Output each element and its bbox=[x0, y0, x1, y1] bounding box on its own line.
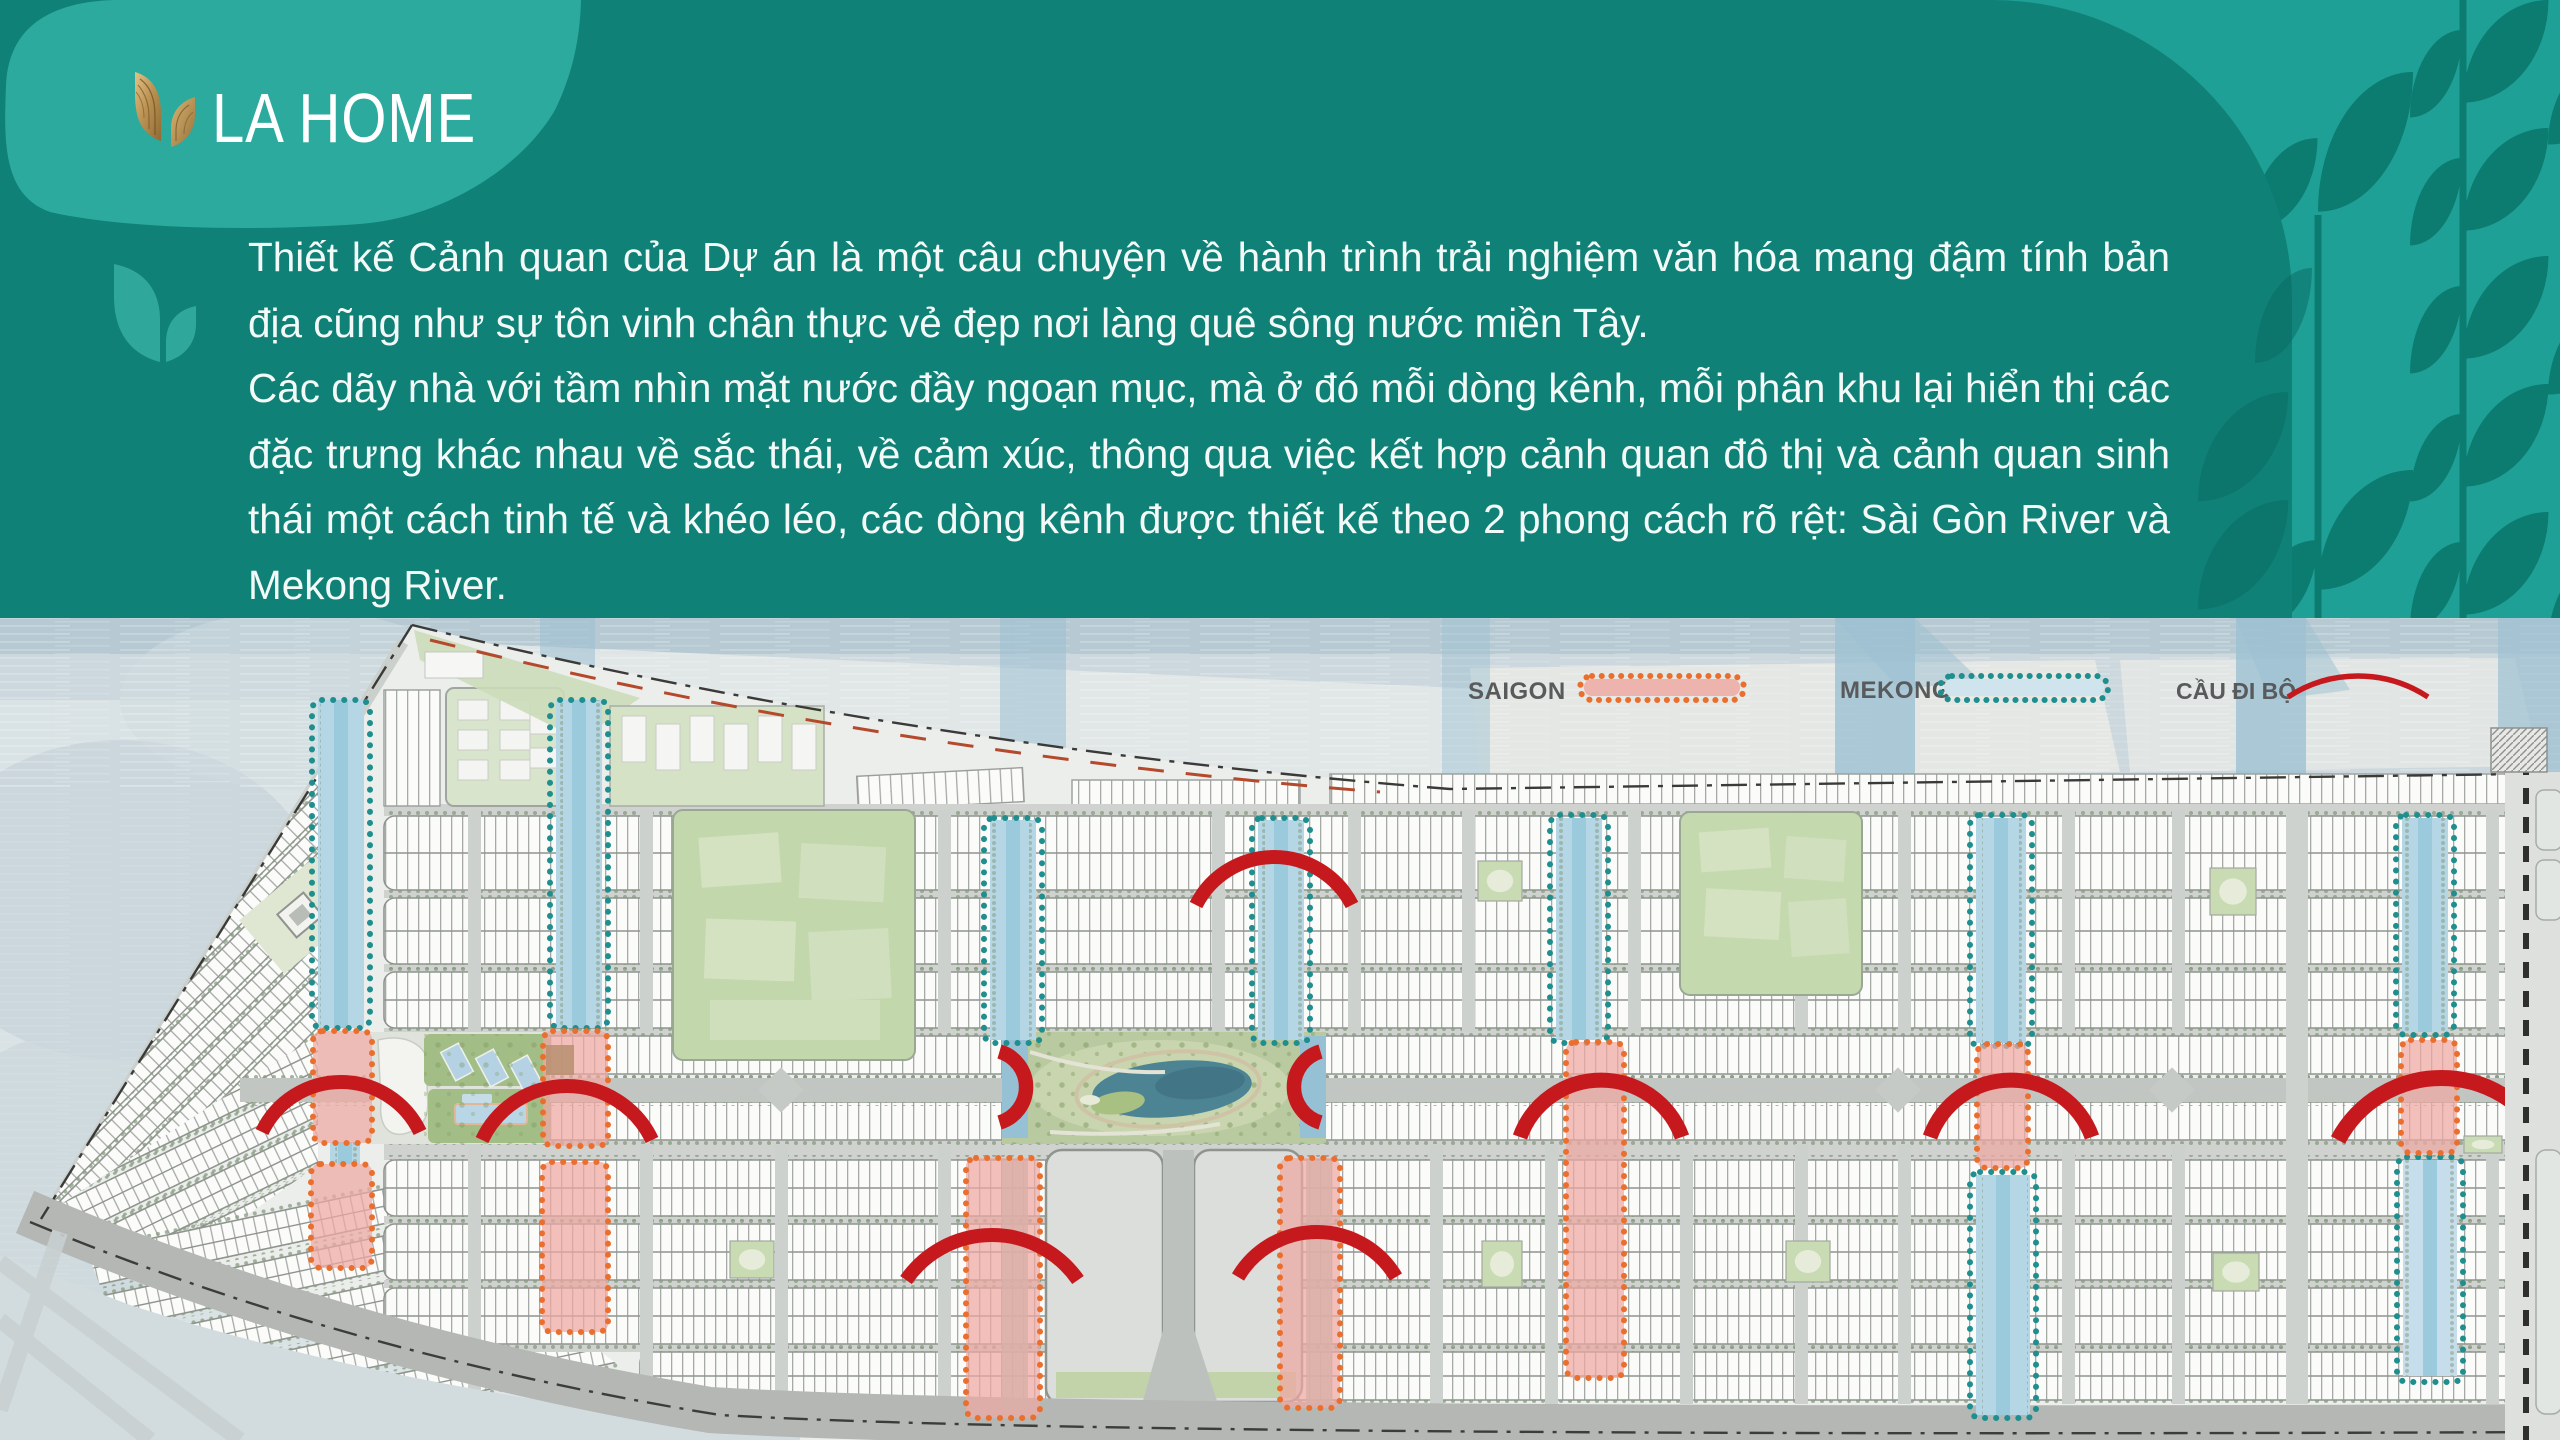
svg-text:CẦU ĐI BỘ: CẦU ĐI BỘ bbox=[2176, 677, 2296, 704]
svg-text:MEKONG: MEKONG bbox=[1840, 677, 1951, 704]
svg-text:SAIGON: SAIGON bbox=[1468, 678, 1566, 705]
